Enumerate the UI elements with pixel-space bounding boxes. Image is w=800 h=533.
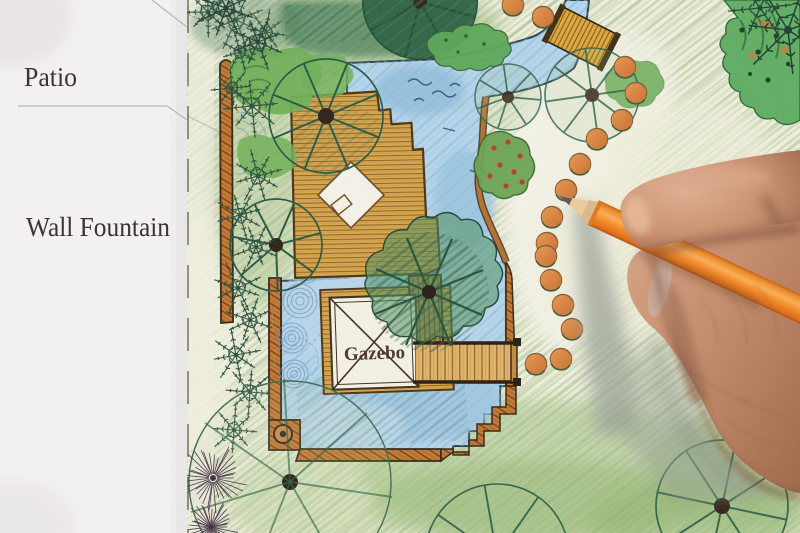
svg-text:Patio: Patio (24, 62, 77, 92)
svg-text:Wall Fountain: Wall Fountain (26, 212, 170, 242)
